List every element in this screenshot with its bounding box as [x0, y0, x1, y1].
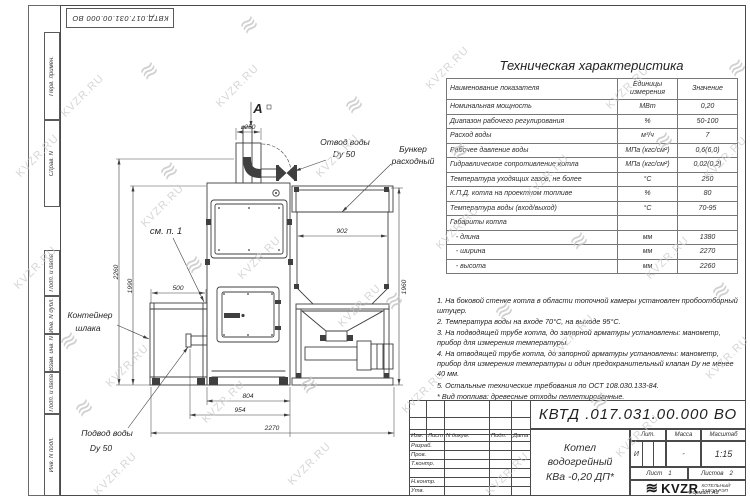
sheet-cell: Лист 1 [630, 467, 688, 480]
margin-label: Инв. N подл. [49, 437, 55, 472]
sign-header-docnum: N докум. [445, 430, 490, 442]
spec-row: Габариты котла [447, 216, 738, 231]
sign-header-podp: Подп. [490, 430, 512, 442]
spec-cell-name: - длина [447, 230, 618, 245]
spec-row: Номинальная мощностьМВт0,20 [447, 100, 738, 115]
technical-note: 3. На подводящей трубе котла, до запорно… [437, 328, 743, 348]
spec-cell-unit: мм [618, 230, 678, 245]
sign-header-data: Дата [512, 430, 531, 442]
top-doc-number: КВТД.017.031.00.000 ВО [72, 14, 169, 23]
spec-row: - длинамм1380 [447, 230, 738, 245]
spec-header-value: Значение [678, 79, 738, 100]
spec-cell-name: Габариты котла [447, 216, 618, 231]
spec-cell-unit: мм [618, 245, 678, 260]
margin-cell-perv-primen: Перв. примен. [44, 32, 60, 120]
lit-header: Лит. [630, 429, 666, 441]
scale-header: Масштаб [701, 429, 746, 441]
spec-cell-value: 2260 [678, 259, 738, 274]
spec-cell-value: 7 [678, 129, 738, 144]
margin-label: Перв. примен. [49, 56, 55, 96]
margin-cell-podp-data-1: Подп. и дата [44, 250, 60, 296]
spec-cell-name: Температура воды (вход/выход) [447, 201, 618, 216]
mass-header: Масса [666, 429, 701, 441]
sign-row-blank [410, 469, 445, 478]
product-name-line2: КВа -0,20 ДП* [546, 470, 614, 484]
technical-note: 1. На боковой стенке котла в области топ… [437, 296, 743, 316]
signature-table: Изм. Лист N докум. Подп. Дата Разраб. Пр… [409, 429, 531, 496]
spec-cell-name: К.П.Д. котла на проектном топливе [447, 187, 618, 202]
sheet-label: Лист [646, 470, 662, 477]
sign-header-list: Лист [427, 430, 445, 442]
spec-header-unit: Единицы измерения [618, 79, 678, 100]
margin-label: Подп. и дата [49, 254, 55, 292]
drawing-sheet: Перв. примен. Справ. N Подп. и дата Инв.… [0, 0, 750, 500]
spec-row: Рабочее давление водыМПа (кгс/см²)0,6(6,… [447, 143, 738, 158]
sign-row-utv: Утв. [410, 487, 445, 496]
spec-row: - ширинамм2270 [447, 245, 738, 260]
spec-cell-name: - ширина [447, 245, 618, 260]
product-name-cell: Котел водогрейный КВа -0,20 ДП* [530, 429, 630, 496]
margin-label: Взам. инв. N [49, 336, 55, 371]
spec-cell-unit: °С [618, 172, 678, 187]
spec-cell-value: 2270 [678, 245, 738, 260]
spec-row: К.П.Д. котла на проектном топливе%80 [447, 187, 738, 202]
spec-cell-unit: мм [618, 259, 678, 274]
spec-cell-unit: МПа (кгс/см²) [618, 158, 678, 173]
margin-cell-sprav-n: Справ. N [44, 120, 60, 207]
spec-cell-unit [618, 216, 678, 231]
spec-table-title: Техническая характеристика [446, 58, 737, 73]
product-name-line1: Котел водогрейный [531, 441, 629, 469]
margin-cell-inv-podl: Инв. N подл. [44, 414, 60, 496]
spec-cell-unit: МПа (кгс/см²) [618, 143, 678, 158]
spec-header-name: Наименование показателя [447, 79, 618, 100]
spec-cell-name: Рабочее давление воды [447, 143, 618, 158]
spec-cell-value [678, 216, 738, 231]
spec-cell-value: 1380 [678, 230, 738, 245]
spec-cell-name: - высота [447, 259, 618, 274]
spec-row: Диапазон рабочего регулирования%50-100 [447, 114, 738, 129]
spec-cell-name: Гидравлическое сопротивление котла [447, 158, 618, 173]
technical-note: 5. Остальные технические требования по О… [437, 381, 743, 391]
top-doc-number-box: КВТД.017.031.00.000 ВО [66, 8, 174, 28]
sheet-value: 1 [668, 470, 671, 477]
spec-row: - высотамм2260 [447, 259, 738, 274]
technical-note: 2. Температура воды на входе 70°С, на вы… [437, 317, 743, 327]
margin-cell-podp-data-2: Подп. и дата [44, 372, 60, 414]
spec-cell-unit: % [618, 187, 678, 202]
spec-header-row: Наименование показателя Единицы измерени… [447, 79, 738, 100]
sheets-label: Листов [701, 470, 724, 477]
margin-label: Подп. и дата [49, 374, 55, 412]
spec-cell-unit: МВт [618, 100, 678, 115]
spec-row: Расход водым³/ч7 [447, 129, 738, 144]
spec-cell-unit: °С [618, 201, 678, 216]
scale-value: 1:15 [701, 441, 746, 467]
spec-row: Гидравлическое сопротивление котлаМПа (к… [447, 158, 738, 173]
lit-value-cell: И [630, 441, 666, 467]
spec-cell-name: Расход воды [447, 129, 618, 144]
margin-label: Справ. N [49, 151, 55, 176]
mass-value: - [666, 441, 701, 467]
spec-row: Температура уходящих газов, не более°С25… [447, 172, 738, 187]
spec-cell-value: 0,20 [678, 100, 738, 115]
spec-cell-value: 0,6(6,0) [678, 143, 738, 158]
sign-row-razrab: Разраб. [410, 442, 445, 451]
margin-label: Инв. N дубл. [49, 298, 55, 333]
spec-cell-value: 50-100 [678, 114, 738, 129]
format-note: Формат А3 [688, 490, 719, 496]
spec-cell-value: 70-95 [678, 201, 738, 216]
spec-cell-unit: м³/ч [618, 129, 678, 144]
spec-cell-name: Температура уходящих газов, не более [447, 172, 618, 187]
spec-cell-value: 80 [678, 187, 738, 202]
sign-row-prov: Пров. [410, 451, 445, 460]
sign-row-tkontr: Т.контр. [410, 460, 445, 469]
margin-cell-vzam-inv: Взам. инв. N [44, 334, 60, 372]
sign-header-izm: Изм. [410, 430, 427, 442]
sign-row-nkontr: Н.контр. [410, 478, 445, 487]
technical-note: 4. На отводящей трубе котла, до запорной… [437, 349, 743, 379]
spec-cell-value: 0,02(0,2) [678, 158, 738, 173]
spec-cell-name: Диапазон рабочего регулирования [447, 114, 618, 129]
technical-notes: 1. На боковой стенке котла в области топ… [437, 296, 743, 403]
sheets-cell: Листов 2 [688, 467, 746, 480]
spec-cell-value: 250 [678, 172, 738, 187]
sheets-value: 2 [730, 470, 733, 477]
spec-row: Температура воды (вход/выход)°С70-95 [447, 201, 738, 216]
title-block-doc-number: КВТД .017.031.00.000 ВО [530, 400, 746, 429]
spec-table: Наименование показателя Единицы измерени… [446, 78, 738, 274]
kvzr-logo-icon: ≋ [646, 481, 659, 496]
margin-cell-inv-dubl: Инв. N дубл. [44, 296, 60, 334]
spec-cell-unit: % [618, 114, 678, 129]
lit-value: И [631, 442, 643, 466]
spec-cell-name: Номинальная мощность [447, 100, 618, 115]
